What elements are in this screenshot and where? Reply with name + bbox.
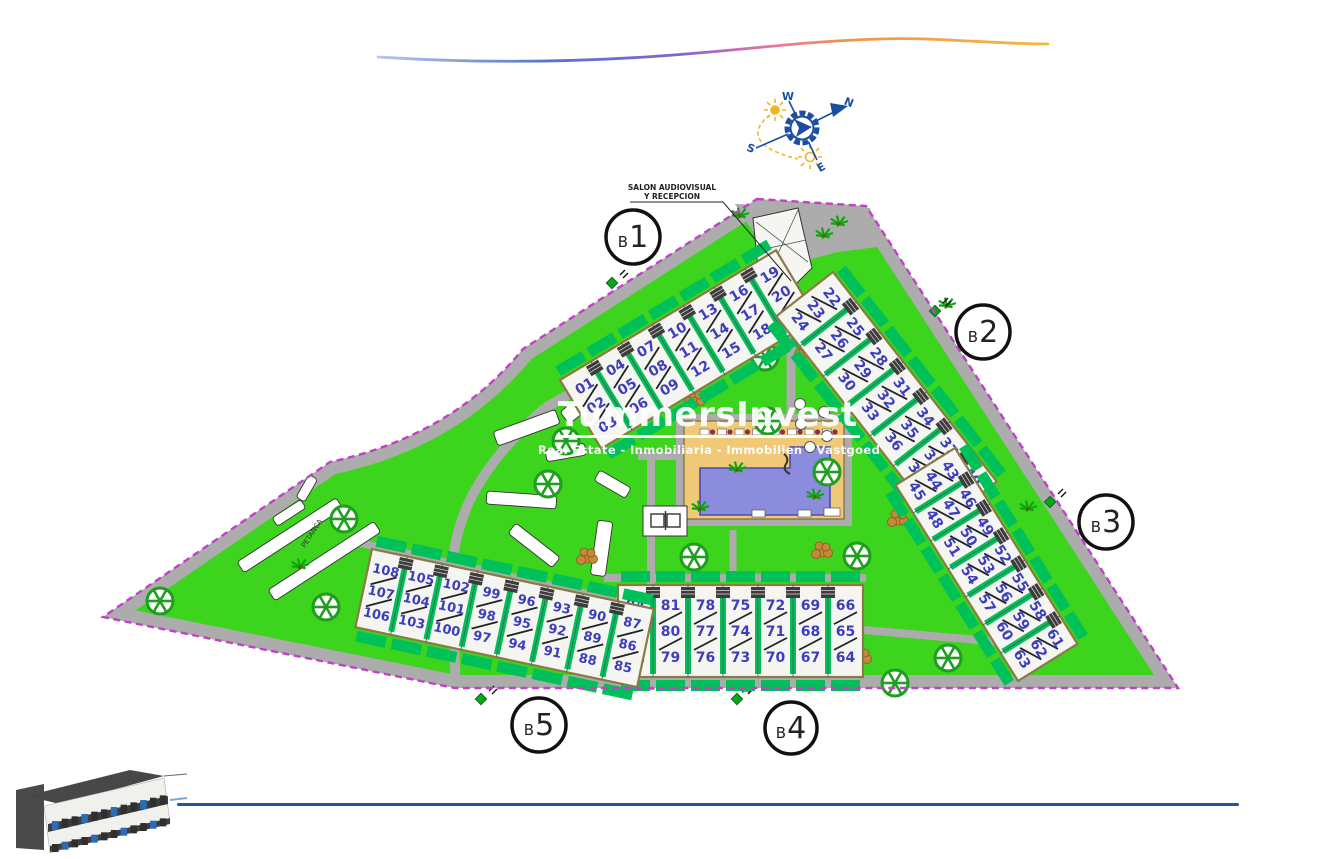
patio-table [819, 407, 830, 418]
unit-number: 69 [801, 598, 820, 614]
unit-number: 79 [661, 650, 680, 666]
patio-table [805, 442, 816, 453]
wheel-tree-icon [935, 645, 961, 671]
wheel-tree-icon [331, 506, 357, 532]
unit-number: 66 [836, 598, 855, 614]
unit-number: 67 [801, 650, 820, 666]
building-b4: 8483828180797877767574737271706968676665… [618, 571, 863, 691]
block-label-b2: B2 [956, 305, 1010, 359]
wheel-tree-icon [535, 471, 561, 497]
block-label-b4: B4 [765, 702, 817, 754]
compass-s: S [745, 141, 757, 156]
wheel-tree-icon [844, 543, 870, 569]
wheel-tree-icon [147, 588, 173, 614]
unit-number: 74 [731, 624, 751, 640]
unit-number: 73 [731, 650, 750, 666]
table-tennis-icon [643, 506, 687, 536]
unit-number: 70 [766, 650, 786, 666]
compass-w: W [782, 90, 794, 103]
patio-table [822, 431, 833, 442]
stairs-icon [681, 587, 695, 598]
patio-table [796, 419, 807, 430]
unit-number: 81 [661, 598, 680, 614]
stairs-icon [786, 587, 800, 598]
compass-icon: W N S E [745, 90, 856, 175]
wheel-tree-icon [553, 428, 579, 454]
unit-number: 76 [696, 650, 715, 666]
wheel-tree-icon [755, 408, 781, 434]
plan-canvas: 0102030405060708091011121314151617181920… [0, 0, 1320, 859]
unit-number: 64 [836, 650, 856, 666]
reception-label-line1: SALON AUDIOVISUAL [628, 183, 716, 192]
unit-number: 77 [696, 624, 715, 640]
unit-number: 75 [731, 598, 750, 614]
site-plan-svg: 0102030405060708091011121314151617181920… [0, 0, 1320, 859]
block-label-b3: B3 [1079, 495, 1133, 549]
unit-number: 71 [766, 624, 785, 640]
building-3d-render-icon [8, 760, 188, 859]
wheel-tree-icon [814, 459, 840, 485]
stairs-icon [751, 587, 765, 598]
stairs-icon [821, 587, 835, 598]
stairs-icon [716, 587, 730, 598]
reception-label-line2: Y RECEPCION [643, 192, 700, 201]
wheel-tree-icon [681, 544, 707, 570]
block-label-b5: B5 [512, 698, 566, 752]
compass-e: E [815, 160, 828, 175]
unit-number: 80 [661, 624, 681, 640]
footer-rule [177, 803, 1239, 806]
wheel-tree-icon [882, 670, 908, 696]
unit-number: 72 [766, 598, 785, 614]
patio-table [795, 399, 806, 410]
unit-number: 65 [836, 624, 855, 640]
unit-number: 68 [801, 624, 820, 640]
block-label-b1: B1 [606, 210, 660, 264]
unit-number: 78 [696, 598, 715, 614]
wheel-tree-icon [313, 594, 339, 620]
